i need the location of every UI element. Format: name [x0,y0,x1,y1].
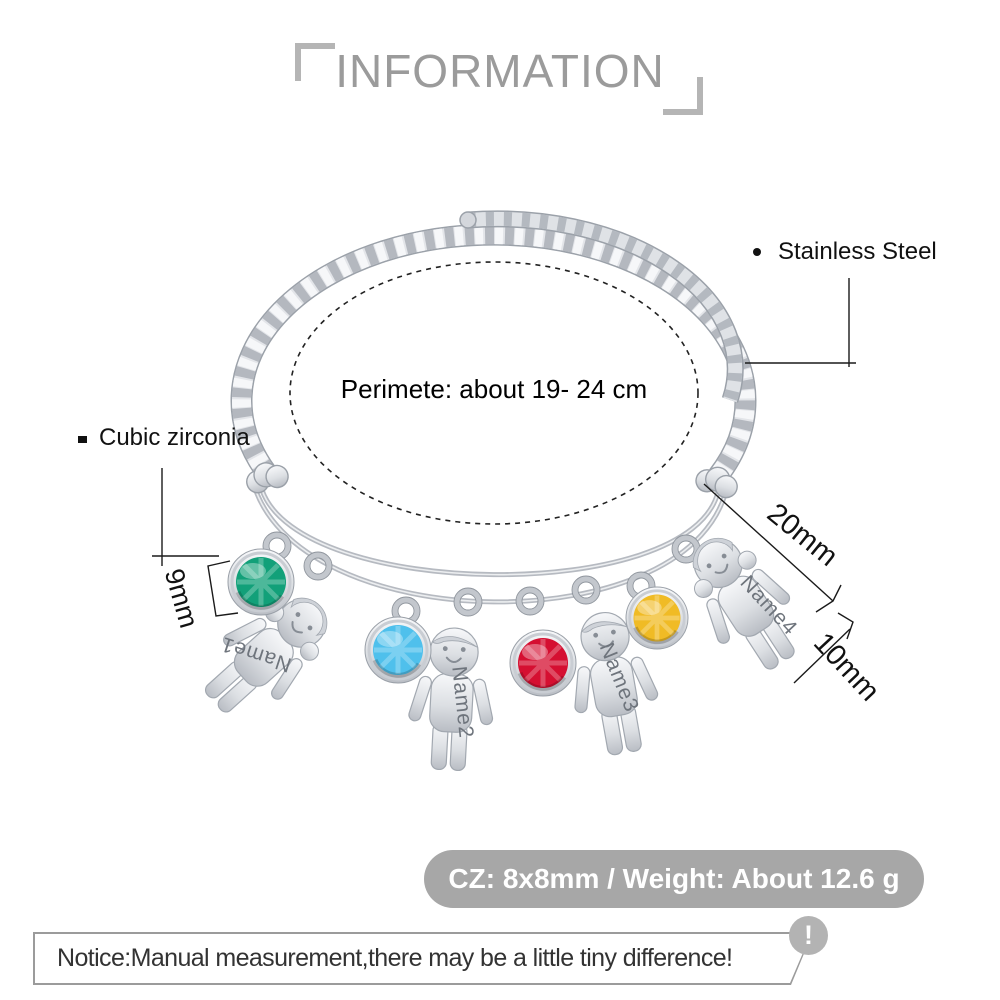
bullet-icon [753,248,761,256]
birthstone-green [228,549,294,615]
twisted-bangle-rope [241,212,745,476]
material-label: Stainless Steel [778,238,937,266]
bullet-icon [78,436,87,443]
exclamation-icon: ! [789,916,828,955]
notice-box: Notice:Manual measurement,there may be a… [33,932,813,985]
page-title: INFORMATION [0,44,1000,98]
title-corner-bracket-right-icon [663,77,703,115]
spec-banner: CZ: 8x8mm / Weight: About 12.6 g [424,850,924,908]
notice-text: Notice:Manual measurement,there may be a… [57,934,732,983]
product-information-card: Name1 Name2 Name3 Name4 INFORMATION Stai… [0,0,1000,1000]
birthstone-yellow [626,587,688,649]
birthstone-red [510,630,576,696]
notice-box-inner: Notice:Manual measurement,there may be a… [35,934,811,983]
birthstone-blue [365,617,431,683]
bangle-wires [252,478,728,602]
perimeter-label: Perimete: about 19- 24 cm [294,374,694,405]
stone-material-label: Cubic zirconia [99,424,250,452]
